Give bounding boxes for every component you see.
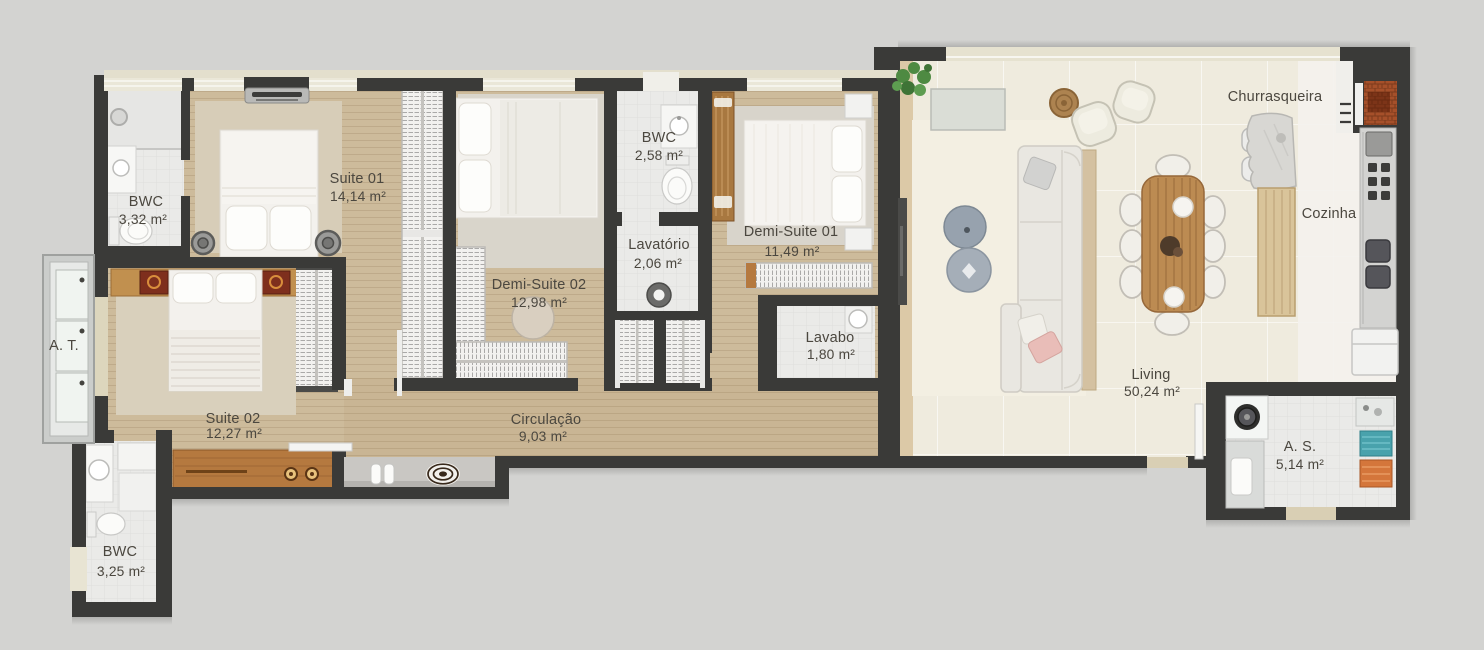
svg-text:Demi-Suite 02: Demi-Suite 02 — [492, 277, 586, 293]
svg-text:12,98 m²: 12,98 m² — [511, 295, 567, 310]
svg-text:BWC: BWC — [129, 194, 163, 210]
svg-text:A. S.: A. S. — [1284, 439, 1316, 455]
svg-text:BWC: BWC — [103, 544, 137, 560]
svg-text:Living: Living — [1131, 367, 1170, 383]
svg-text:A. T.: A. T. — [49, 338, 79, 354]
svg-text:1,80 m²: 1,80 m² — [807, 347, 855, 362]
svg-text:Suite 02: Suite 02 — [206, 411, 261, 427]
svg-text:5,14 m²: 5,14 m² — [1276, 457, 1324, 472]
svg-text:Lavabo: Lavabo — [806, 330, 855, 346]
svg-text:11,49 m²: 11,49 m² — [764, 244, 819, 259]
svg-text:BWC: BWC — [642, 130, 676, 146]
svg-text:50,24 m²: 50,24 m² — [1124, 384, 1180, 399]
svg-text:3,32 m²: 3,32 m² — [119, 212, 167, 227]
svg-text:Demi-Suite 01: Demi-Suite 01 — [744, 224, 838, 240]
svg-text:2,58 m²: 2,58 m² — [635, 148, 683, 163]
svg-text:9,03 m²: 9,03 m² — [519, 429, 567, 444]
svg-text:Suite 01: Suite 01 — [330, 171, 385, 187]
svg-text:Cozinha: Cozinha — [1302, 206, 1357, 222]
svg-text:Circulação: Circulação — [511, 412, 582, 428]
svg-text:14,14 m²: 14,14 m² — [330, 189, 386, 204]
svg-text:12,27 m²: 12,27 m² — [206, 426, 262, 441]
svg-text:Lavatório: Lavatório — [628, 237, 689, 253]
svg-text:2,06 m²: 2,06 m² — [634, 256, 682, 271]
svg-text:Churrasqueira: Churrasqueira — [1228, 89, 1323, 105]
svg-text:3,25 m²: 3,25 m² — [97, 564, 145, 579]
